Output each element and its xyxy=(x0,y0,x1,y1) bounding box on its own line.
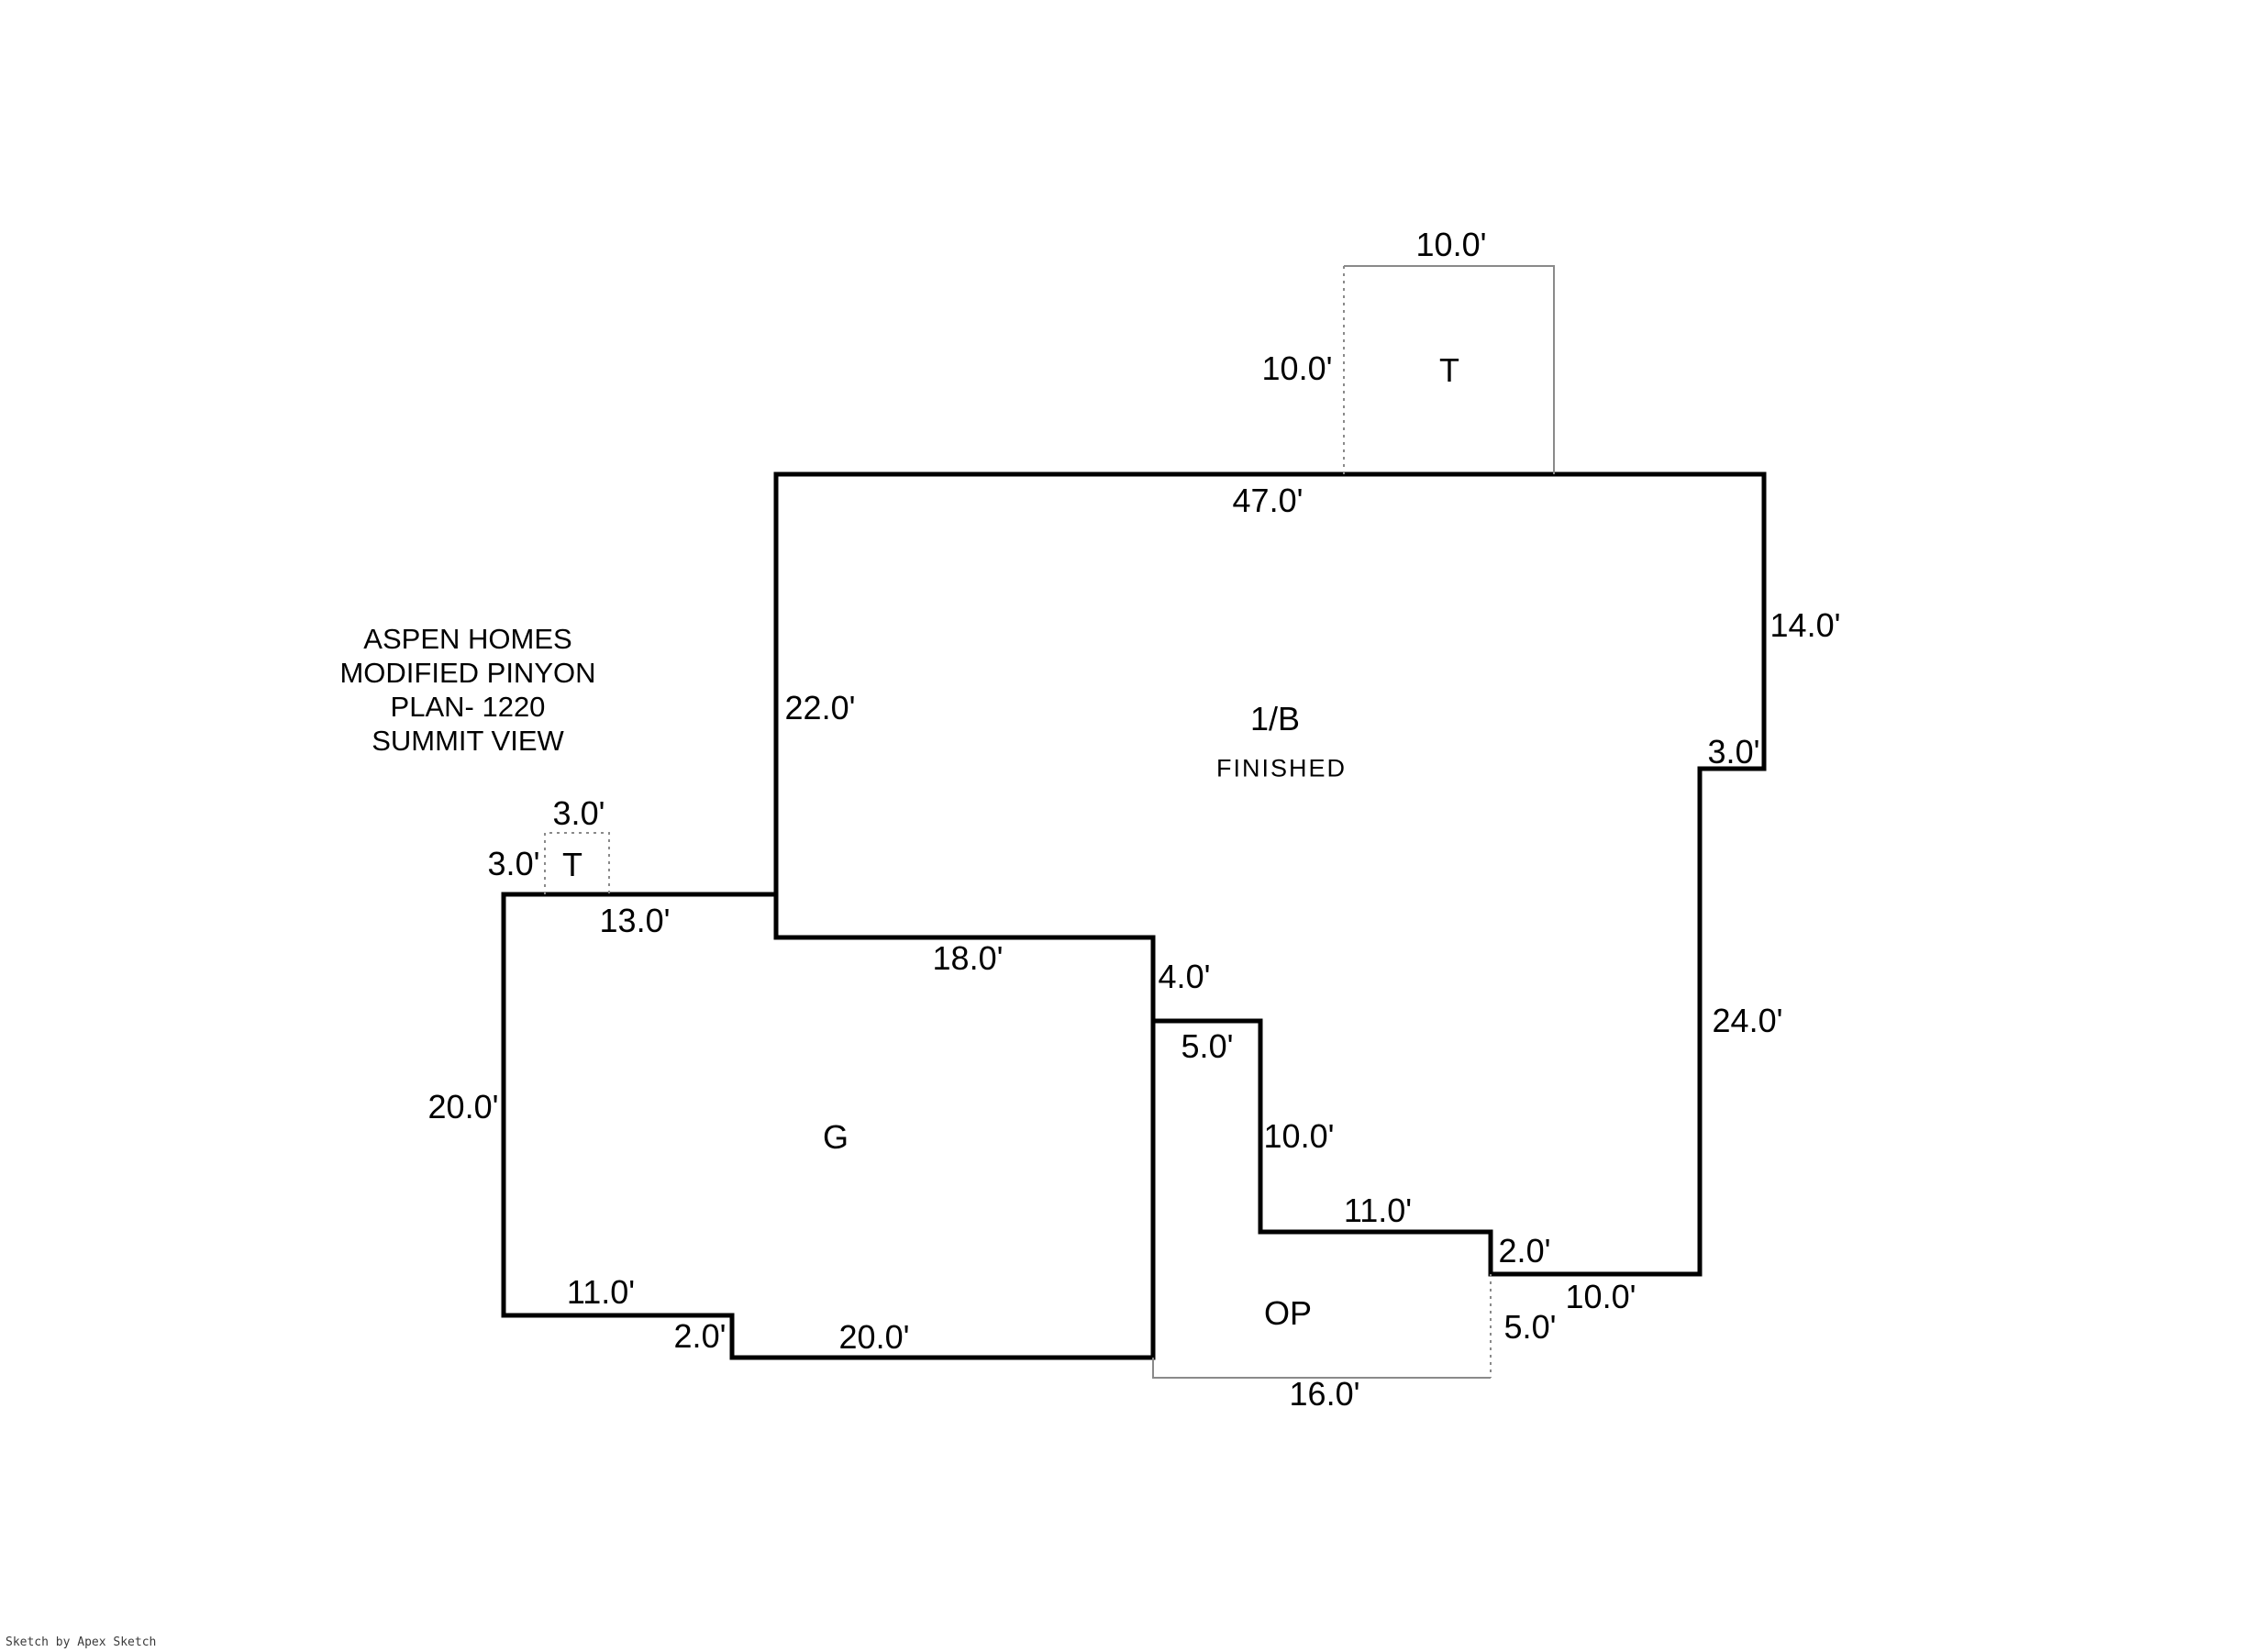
area-label-garage: G xyxy=(823,1121,849,1154)
dim-t-left-height: 3.0' xyxy=(488,848,540,881)
dim-main-top: 47.0' xyxy=(1233,484,1303,517)
dim-porch-right: 5.0' xyxy=(1504,1311,1557,1344)
dim-step-5: 5.0' xyxy=(1181,1030,1234,1063)
dim-garage-left: 20.0' xyxy=(428,1091,499,1124)
title-line-3: PLAN- 1220 xyxy=(303,690,633,724)
title-line-4: SUMMIT VIEW xyxy=(303,724,633,758)
dim-main-right-step: 3.0' xyxy=(1708,736,1760,769)
dim-main-bottom-18: 18.0' xyxy=(933,942,1004,975)
dim-step-10-vertical: 10.0' xyxy=(1264,1120,1335,1153)
dim-main-right-upper: 14.0' xyxy=(1770,609,1841,642)
title-line-2: MODIFIED PINYON xyxy=(303,656,633,690)
apex-sketch-watermark: Sketch by Apex Sketch xyxy=(6,1635,156,1649)
dim-step-4: 4.0' xyxy=(1159,960,1211,993)
area-label-open-porch: OP xyxy=(1264,1297,1312,1330)
dim-garage-bottom-step-2: 2.0' xyxy=(674,1320,727,1353)
dim-t-top-height: 10.0' xyxy=(1262,352,1333,385)
area-sublabel-main: FINISHED xyxy=(1216,757,1347,782)
plan-title-block: ASPEN HOMES MODIFIED PINYON PLAN- 1220 S… xyxy=(303,622,633,758)
dim-step-2: 2.0' xyxy=(1499,1235,1551,1268)
area-label-tub-top: T xyxy=(1439,354,1459,387)
dim-t-left-width: 3.0' xyxy=(553,797,605,830)
dim-garage-bottom-20: 20.0' xyxy=(839,1321,910,1354)
dim-bottom-right-10: 10.0' xyxy=(1566,1281,1636,1314)
dim-garage-top: 13.0' xyxy=(600,904,671,937)
dim-main-left: 22.0' xyxy=(785,692,856,725)
dim-main-right-lower: 24.0' xyxy=(1713,1004,1783,1037)
floorplan-drawing xyxy=(0,0,2252,1652)
dim-step-11: 11.0' xyxy=(1344,1194,1412,1227)
area-label-tub-left: T xyxy=(562,848,582,881)
floorplan-sketch: ASPEN HOMES MODIFIED PINYON PLAN- 1220 S… xyxy=(0,0,2252,1652)
dim-porch-bottom: 16.0' xyxy=(1290,1378,1360,1411)
title-line-1: ASPEN HOMES xyxy=(303,622,633,656)
dim-garage-bottom-11: 11.0' xyxy=(567,1276,635,1309)
dim-t-top-width: 10.0' xyxy=(1416,228,1487,261)
area-label-main: 1/B xyxy=(1250,703,1300,736)
